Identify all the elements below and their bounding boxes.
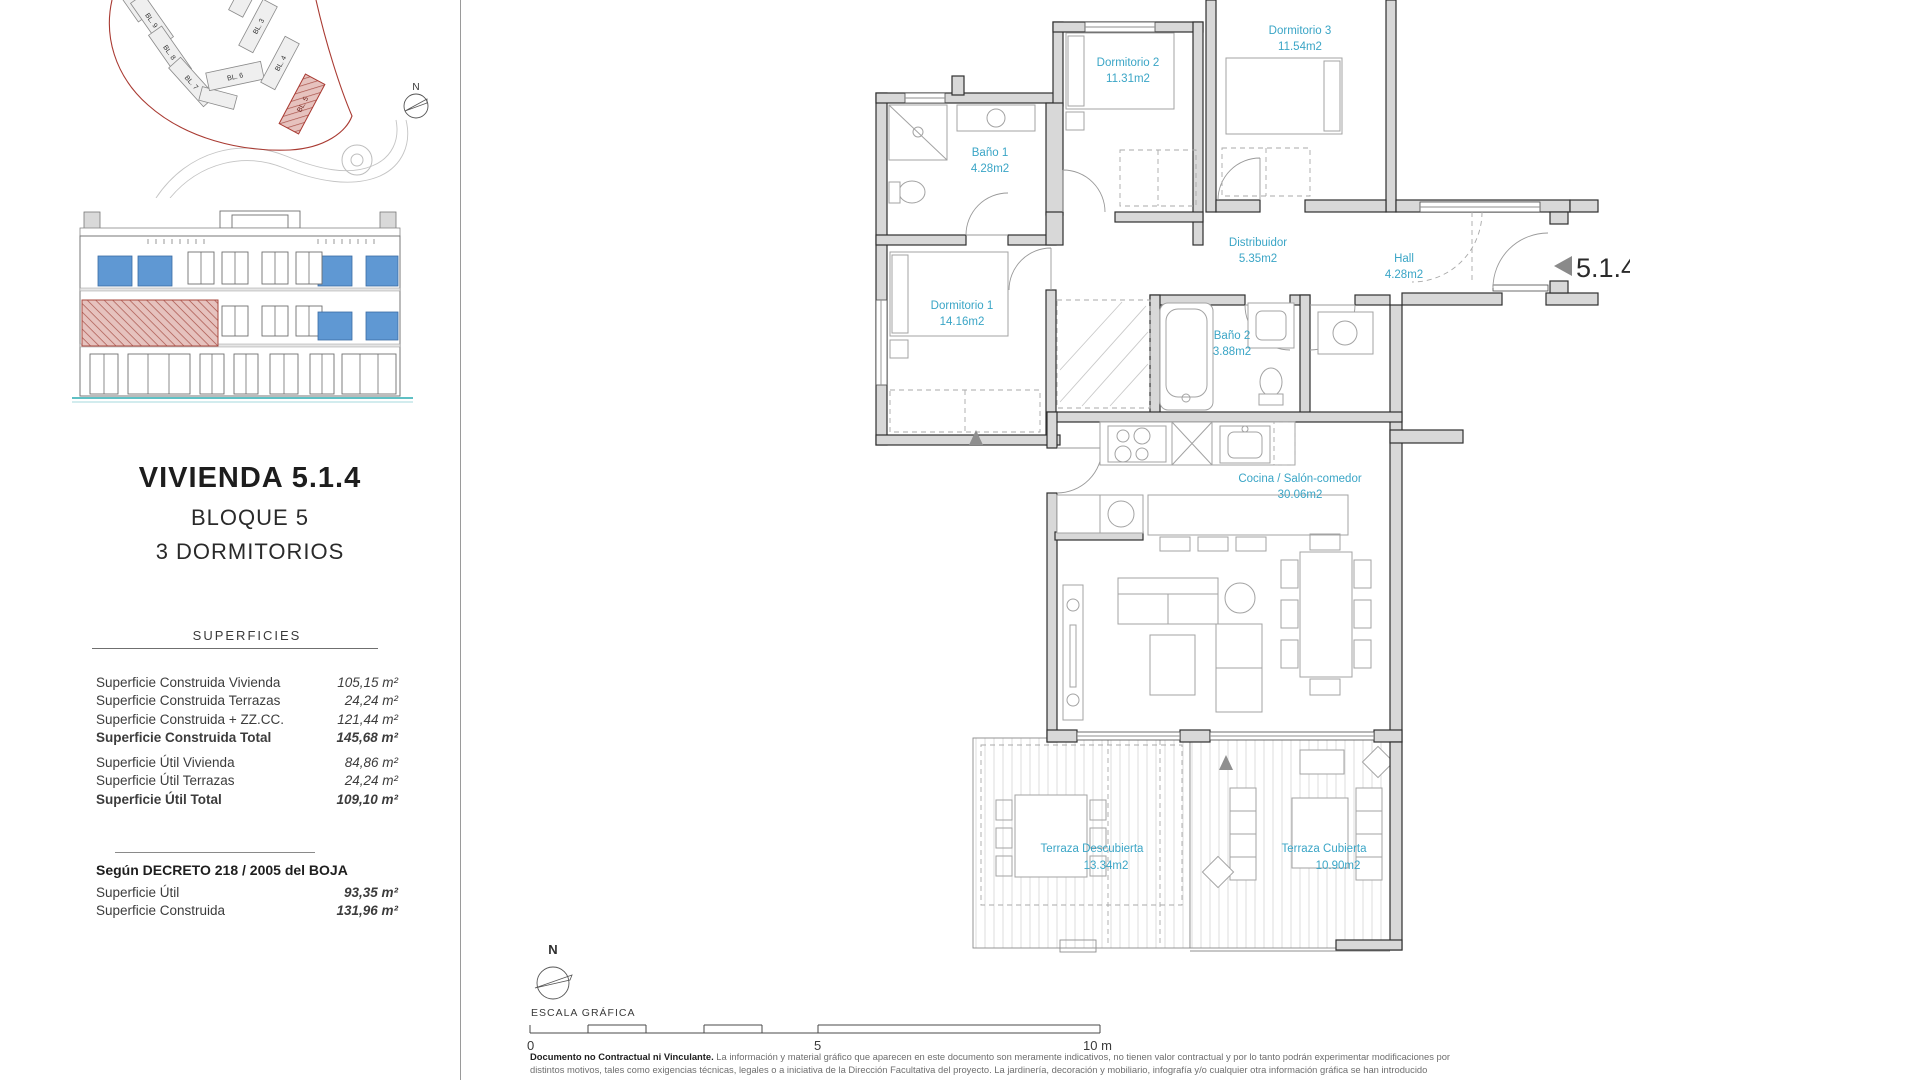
row-value: 24,24 m² [345, 692, 398, 710]
bedroom3-furniture [1222, 58, 1342, 196]
north-label: N [548, 942, 557, 957]
superficies-table: Superficie Construida Vivienda 105,15 m²… [96, 674, 398, 809]
chimney [84, 212, 100, 230]
panel-divider [460, 0, 461, 1080]
room-label: Terraza Cubierta [1281, 843, 1367, 855]
row-value: 84,86 m² [345, 754, 398, 772]
title-block: VIVIENDA 5.1.4 BLOQUE 5 3 DORMITORIOS [90, 462, 410, 565]
road-line [156, 120, 397, 198]
room-area: 3.88m2 [1213, 346, 1251, 358]
block-subtitle: BLOQUE 5 [90, 505, 410, 531]
row-label: Superficie Construida [96, 902, 225, 920]
row-value: 145,68 m² [336, 729, 398, 747]
table-row: Superficie Construida 131,96 m² [96, 902, 398, 920]
table-row: Superficie Útil Terrazas 24,24 m² [96, 772, 398, 790]
page-title: VIVIENDA 5.1.4 [90, 462, 410, 495]
table-row-total: Superficie Útil Total 109,10 m² [96, 791, 398, 809]
room-label: Cocina / Salón-comedor [1238, 473, 1362, 485]
north-compass: N [535, 942, 572, 999]
room-label: Hall [1394, 253, 1414, 265]
floor-plan: Dormitorio 2 11.31m2 Dormitorio 3 11.54m… [690, 0, 1630, 985]
floor-slab [80, 288, 400, 291]
bedrooms-subtitle: 3 DORMITORIOS [90, 539, 410, 565]
room-area: 5.35m2 [1239, 253, 1277, 265]
scale-bar [530, 1025, 1100, 1033]
row-label: Superficie Útil [96, 884, 179, 902]
room-label: Baño 2 [1214, 330, 1250, 342]
north-label: N [412, 82, 419, 93]
north-needle-icon [535, 975, 572, 988]
row-value: 93,35 m² [344, 884, 398, 902]
chimney [380, 212, 396, 230]
balcony-glazing [318, 256, 352, 286]
row-value: 131,96 m² [336, 902, 398, 920]
row-label: Superficie Construida Vivienda [96, 674, 280, 692]
row-value: 24,24 m² [345, 772, 398, 790]
room-area: 10.90m2 [1316, 860, 1361, 872]
decreto-header: Según DECRETO 218 / 2005 del BOJA [96, 862, 398, 878]
room-label: Distribuidor [1229, 237, 1287, 249]
row-label: Superficie Construida Total [96, 729, 271, 747]
site-plan: BL. 9 BL. 8 BL. 7 BL. 6 BL. 3 BL. 4 [100, 0, 445, 198]
disclaimer-line2: distintos motivos, tales como exigencias… [530, 1064, 1530, 1077]
row-label: Superficie Construida Terrazas [96, 692, 280, 710]
unit-highlight [82, 300, 218, 346]
decreto-block: Según DECRETO 218 / 2005 del BOJA Superf… [96, 862, 398, 921]
room-area: 30.06m2 [1278, 489, 1323, 501]
room-area: 4.28m2 [1385, 269, 1423, 281]
site-block-bl5-highlighted: BL. 5 [279, 74, 325, 134]
hall-closet [1318, 312, 1373, 354]
room-label: Baño 1 [972, 147, 1008, 159]
row-value: 121,44 m² [337, 711, 398, 729]
superficies-divider [92, 648, 378, 649]
superficies-header: SUPERFICIES [96, 628, 398, 643]
site-north-compass: N [404, 82, 428, 118]
table-row: Superficie Construida Terrazas 24,24 m² [96, 692, 398, 710]
building-elevation [70, 206, 415, 408]
room-label: Terraza Descubierta [1041, 843, 1145, 855]
row-value: 109,10 m² [336, 791, 398, 809]
row-label: Superficie Útil Total [96, 791, 222, 809]
site-block-bl6: BL. 6 [206, 61, 265, 90]
room-area: 13.34m2 [1084, 860, 1129, 872]
unit-entry-label: 5.1.4 [1554, 253, 1630, 283]
table-row: Superficie Construida Vivienda 105,15 m² [96, 674, 398, 692]
table-row: Superficie Útil Vivienda 84,86 m² [96, 754, 398, 772]
row-label: Superficie Útil Terrazas [96, 772, 235, 790]
entry-arrow-icon [1554, 256, 1572, 276]
kitchen [1057, 422, 1348, 551]
row-label: Superficie Útil Vivienda [96, 754, 235, 772]
floorplan-sheet: BL. 9 BL. 8 BL. 7 BL. 6 BL. 3 BL. 4 [0, 0, 1920, 1080]
escala-grafica-label: ESCALA GRÁFICA [531, 1006, 635, 1019]
roundabout [342, 145, 372, 175]
closet-corridor [1057, 300, 1150, 408]
roof-housing-inner [232, 215, 288, 228]
table-row: Superficie Útil 93,35 m² [96, 884, 398, 902]
room-label: Dormitorio 2 [1097, 57, 1160, 69]
site-block-bl4: BL. 4 [261, 36, 300, 89]
bedroom1-furniture [890, 252, 1040, 432]
scale-area: N ESCALA GRÁFICA 0 5 10 m [515, 938, 1115, 1063]
balcony-glazing [138, 256, 172, 286]
room-area: 11.31m2 [1106, 73, 1150, 85]
table-row-total: Superficie Construida Total 145,68 m² [96, 729, 398, 747]
unit-number: 5.1.4 [1576, 253, 1630, 283]
ground-floor-windows [90, 354, 396, 394]
disclaimer: Documento no Contractual ni Vinculante. … [530, 1051, 1530, 1076]
row-label: Superficie Construida + ZZ.CC. [96, 711, 284, 729]
living-room-furniture [1063, 534, 1371, 720]
room-label: Dormitorio 1 [931, 300, 994, 312]
table-row: Superficie Construida + ZZ.CC. 121,44 m² [96, 711, 398, 729]
room-label: Dormitorio 3 [1269, 25, 1332, 37]
parapet [80, 228, 400, 236]
room-area: 4.28m2 [971, 163, 1009, 175]
decreto-divider [115, 852, 315, 853]
room-area: 14.16m2 [940, 316, 985, 328]
bathroom1-fixtures [889, 105, 1035, 203]
row-value: 105,15 m² [337, 674, 398, 692]
disclaimer-lead: Documento no Contractual ni Vinculante. [530, 1051, 714, 1062]
balcony-glazing [98, 256, 132, 286]
room-area: 11.54m2 [1278, 41, 1322, 53]
balcony-glazing [366, 256, 398, 286]
disclaimer-text: La información y material gráfico que ap… [714, 1051, 1450, 1062]
disclaimer-line1: Documento no Contractual ni Vinculante. … [530, 1051, 1530, 1064]
roundabout-center [351, 154, 363, 166]
